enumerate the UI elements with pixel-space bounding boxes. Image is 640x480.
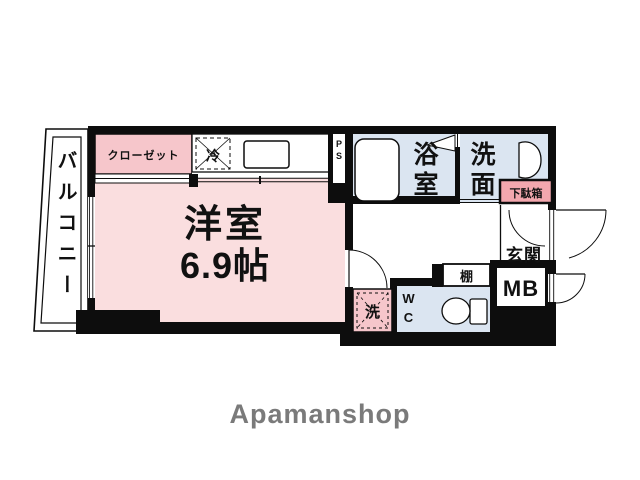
meter-box-label: MB [497,276,545,302]
main-room-label: 洋室 6.9帖 [105,204,345,286]
front-door-opening [548,210,556,260]
toilet-icon [442,298,487,324]
shelf-label: 棚 [443,266,490,285]
sink-icon [519,142,541,178]
washroom-label: 洗面 [463,141,499,203]
bathroom-label: 浴室 [406,141,442,203]
floorplan-page: バルコニー クローゼット 冷 PS 洋室 6.9帖 浴室 洗面 下駄箱 玄関 M… [0,0,640,480]
balcony-label: バルコニー [51,150,80,330]
fridge-label: 冷 [192,146,234,166]
pipe-space-label: PS [334,139,344,185]
entrance-label: 玄関 [500,241,548,266]
washer-label: 洗 [353,301,392,322]
bathtub-icon [355,139,399,201]
toilet-label: WC [401,291,416,331]
room-name-label: 洋室 [105,204,345,246]
front-door-arc [556,210,606,258]
brand-logo: Apamanshop [0,399,640,430]
shoe-box-label: 下駄箱 [500,185,552,201]
mb-door-opening [548,274,556,302]
balcony-window [88,197,95,298]
kitchen-sink [244,141,289,168]
closet-label: クローゼット [95,147,192,163]
room-size-label: 6.9帖 [105,246,345,286]
mb-door-arc [556,274,585,303]
room-door-arc [349,250,387,288]
